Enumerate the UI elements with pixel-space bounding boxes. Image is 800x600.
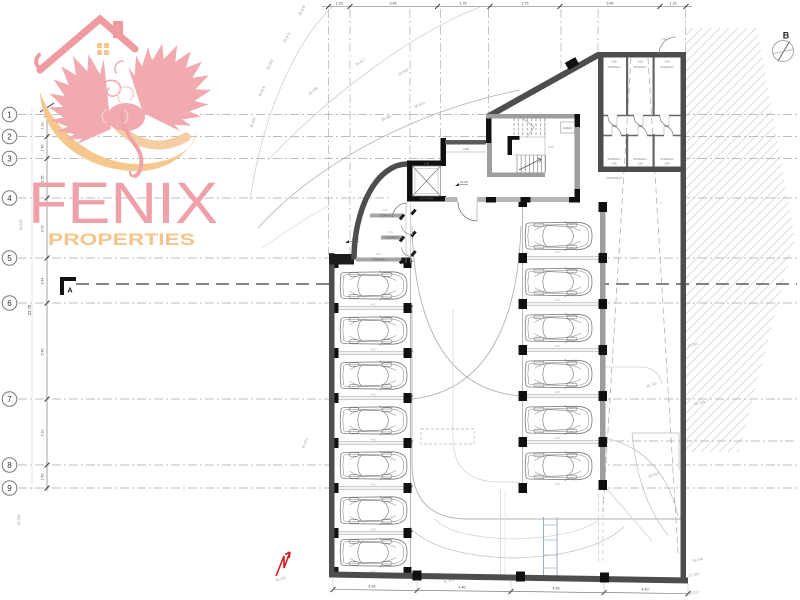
svg-text:STORAGE 6: STORAGE 6	[660, 66, 674, 69]
svg-text:35.971: 35.971	[283, 32, 292, 44]
svg-text:STORAGE 10: STORAGE 10	[606, 177, 622, 180]
svg-text:4.43: 4.43	[371, 394, 376, 397]
svg-text:5.45: 5.45	[607, 2, 614, 6]
svg-text:4.93: 4.93	[553, 587, 560, 591]
svg-text:1.00: 1.00	[637, 60, 643, 64]
svg-text:5.45: 5.45	[41, 349, 45, 356]
svg-text:STORAGE 2: STORAGE 2	[385, 237, 399, 240]
svg-text:35.238: 35.238	[17, 515, 21, 526]
svg-text:4.43: 4.43	[371, 439, 376, 442]
svg-text:4.93: 4.93	[369, 585, 376, 589]
svg-text:35.962: 35.962	[398, 68, 410, 77]
svg-text:STORAGE 5: STORAGE 5	[633, 66, 647, 69]
svg-text:-0.050: -0.050	[351, 237, 359, 241]
svg-text:4.43: 4.43	[555, 299, 560, 302]
svg-text:9: 9	[7, 484, 12, 493]
svg-text:1.00: 1.00	[637, 162, 643, 166]
svg-text:±0.000: ±0.000	[460, 180, 468, 184]
svg-text:1.00: 1.00	[664, 60, 670, 64]
svg-text:STORAGE 9: STORAGE 9	[660, 158, 674, 161]
svg-text:1.15: 1.15	[670, 2, 677, 6]
svg-text:2.65: 2.65	[548, 145, 554, 149]
svg-text:36.246: 36.246	[692, 557, 704, 563]
svg-text:35.619: 35.619	[258, 86, 266, 98]
svg-text:1.45: 1.45	[383, 210, 388, 212]
svg-text:1.40: 1.40	[41, 145, 45, 152]
svg-text:0.90: 0.90	[662, 38, 667, 41]
svg-text:7: 7	[7, 395, 12, 404]
svg-text:1.40: 1.40	[41, 474, 45, 481]
svg-text:6: 6	[7, 299, 12, 308]
svg-text:4.43: 4.43	[371, 349, 376, 352]
svg-text:1.45: 1.45	[611, 60, 617, 64]
svg-text:5: 5	[7, 254, 12, 263]
svg-text:4.10: 4.10	[41, 430, 45, 437]
svg-text:4.43: 4.43	[555, 345, 560, 348]
svg-text:LIFT 8 PAX: LIFT 8 PAX	[420, 197, 433, 201]
svg-text:2.75: 2.75	[522, 2, 529, 6]
svg-text:36.226: 36.226	[19, 220, 23, 231]
svg-text:36.322: 36.322	[688, 590, 700, 596]
svg-text:35.562: 35.562	[266, 59, 274, 71]
svg-text:STORAGE 1: STORAGE 1	[380, 215, 394, 218]
svg-text:KAMERA: KAMERA	[563, 127, 573, 130]
svg-text:4.43: 4.43	[555, 483, 560, 486]
svg-text:4.43: 4.43	[555, 437, 560, 440]
svg-text:22.70: 22.70	[27, 304, 32, 315]
svg-text:35.434: 35.434	[249, 117, 257, 129]
svg-text:1.45: 1.45	[376, 254, 381, 256]
svg-text:PROPERTIES: PROPERTIES	[48, 230, 195, 249]
svg-text:4: 4	[7, 194, 12, 203]
svg-text:STORAGE 3: STORAGE 3	[373, 259, 387, 262]
svg-text:1: 1	[7, 111, 12, 120]
svg-text:37.281: 37.281	[687, 342, 699, 349]
svg-text:STORAGE 4: STORAGE 4	[607, 66, 621, 69]
svg-text:2.44: 2.44	[41, 278, 45, 285]
svg-text:4.43: 4.43	[371, 304, 376, 307]
svg-text:37.284: 37.284	[688, 572, 700, 578]
svg-text:1.75: 1.75	[460, 2, 467, 6]
svg-text:4.43: 4.43	[371, 571, 376, 574]
svg-text:36.286: 36.286	[694, 400, 706, 407]
svg-text:35.843: 35.843	[648, 471, 660, 478]
svg-text:1.45: 1.45	[388, 232, 393, 234]
svg-text:1.40: 1.40	[424, 162, 430, 166]
svg-text:35.290: 35.290	[275, 576, 287, 583]
svg-text:8: 8	[7, 461, 12, 470]
svg-text:4.43: 4.43	[555, 391, 560, 394]
svg-text:1.45: 1.45	[611, 162, 617, 166]
svg-text:1.25: 1.25	[336, 2, 343, 6]
svg-text:35.630: 35.630	[298, 5, 307, 17]
svg-text:FENIX: FENIX	[28, 171, 218, 236]
svg-text:35.792: 35.792	[646, 381, 658, 388]
svg-text:4.43: 4.43	[555, 251, 560, 254]
svg-text:STORAGE 7: STORAGE 7	[607, 158, 621, 161]
svg-text:STORAGE 8: STORAGE 8	[633, 158, 647, 161]
svg-text:1.10: 1.10	[41, 123, 45, 130]
svg-text:4.43: 4.43	[371, 529, 376, 532]
svg-text:35.798: 35.798	[308, 86, 319, 96]
svg-text:35.981: 35.981	[381, 114, 393, 122]
svg-text:2: 2	[7, 133, 12, 142]
svg-text:2.90: 2.90	[463, 147, 469, 151]
svg-text:3.45: 3.45	[390, 2, 397, 6]
svg-text:35.617: 35.617	[355, 57, 366, 66]
svg-text:4.40: 4.40	[642, 588, 649, 592]
svg-text:1.00: 1.00	[664, 162, 670, 166]
svg-text:35.973: 35.973	[414, 101, 426, 109]
svg-text:4.43: 4.43	[371, 484, 376, 487]
svg-text:A: A	[67, 288, 72, 295]
svg-text:4.40: 4.40	[459, 586, 466, 590]
svg-text:3: 3	[7, 155, 12, 164]
svg-text:35.454: 35.454	[301, 438, 309, 450]
svg-text:B: B	[783, 31, 790, 41]
